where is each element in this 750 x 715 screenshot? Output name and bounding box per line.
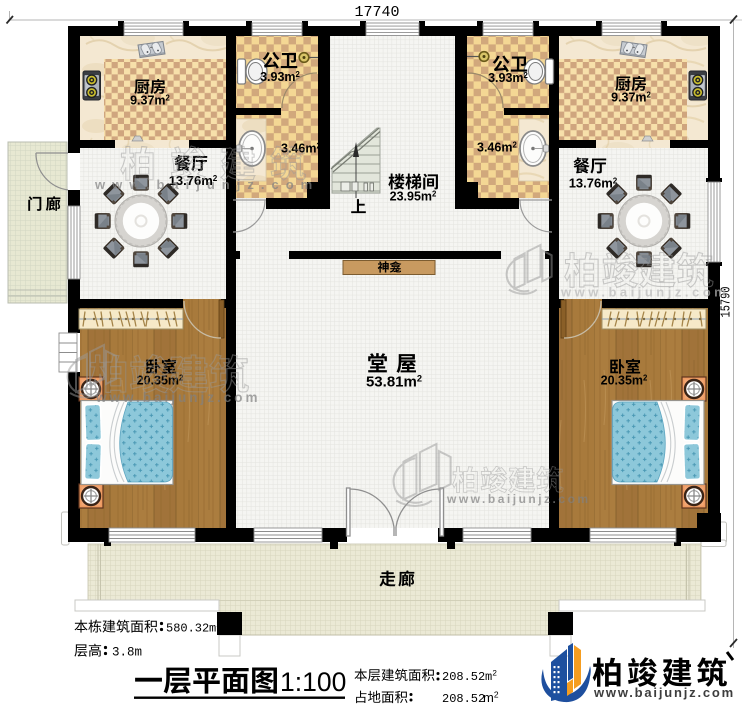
svg-text:3.8m: 3.8m: [112, 646, 142, 660]
svg-text:3.46m2: 3.46m2: [477, 141, 517, 155]
svg-text:53.81m2: 53.81m2: [366, 374, 422, 391]
svg-text:208.52: 208.52: [442, 670, 485, 684]
svg-text:17740: 17740: [354, 4, 399, 21]
svg-text:www.baijunjz.com: www.baijunjz.com: [560, 285, 729, 300]
svg-text:9.37m2: 9.37m2: [130, 94, 170, 108]
svg-text:9.37m2: 9.37m2: [611, 91, 651, 105]
svg-text:www.baijunjz.com: www.baijunjz.com: [593, 685, 735, 700]
svg-text:20.35m2: 20.35m2: [601, 374, 648, 388]
svg-text:208.52: 208.52: [442, 692, 485, 706]
svg-text:13.76m2: 13.76m2: [569, 176, 618, 191]
svg-text:3.93m2: 3.93m2: [488, 71, 528, 85]
svg-text:3.93m2: 3.93m2: [260, 70, 300, 84]
svg-text:www.baijunjz.com: www.baijunjz.com: [446, 492, 591, 506]
svg-text:23.95m2: 23.95m2: [390, 190, 437, 204]
svg-text:www.baijunjz.com: www.baijunjz.com: [95, 390, 261, 405]
svg-text:1:100: 1:100: [280, 667, 346, 697]
svg-text:580.32: 580.32: [166, 622, 209, 636]
svg-text:www.baijunjz.com: www.baijunjz.com: [94, 177, 319, 192]
